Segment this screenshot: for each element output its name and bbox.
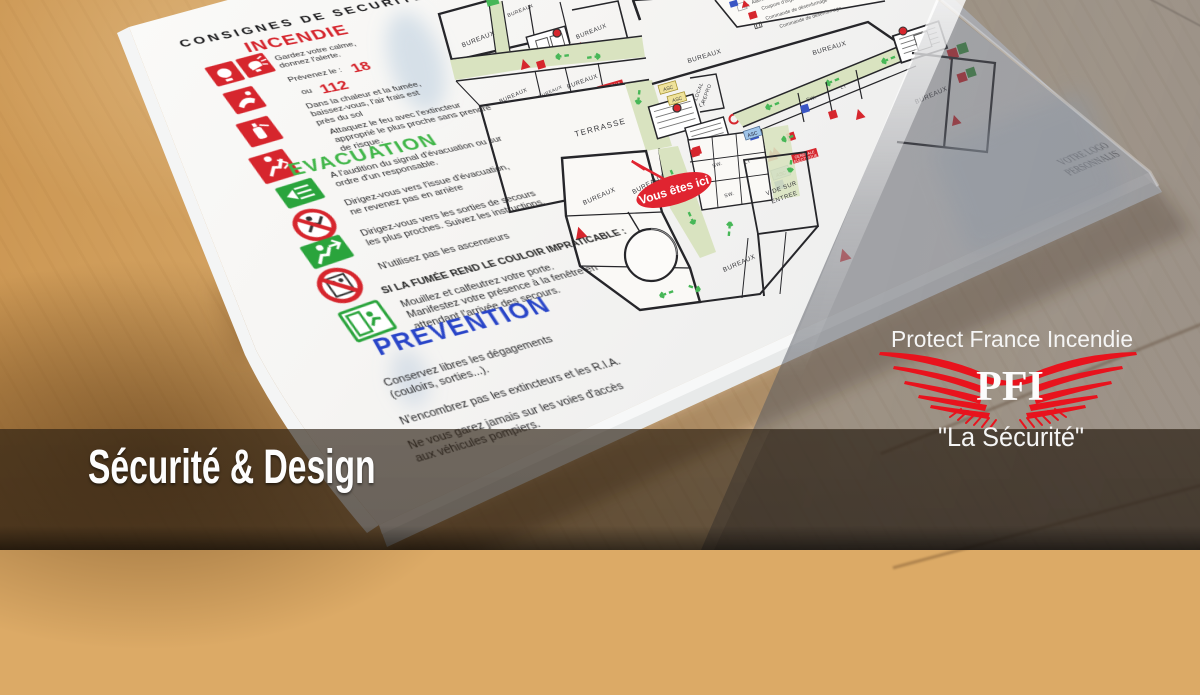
- svg-text:"La Sécurité": "La Sécurité": [938, 422, 1084, 452]
- svg-text:Protect France Incendie: Protect France Incendie: [891, 326, 1133, 352]
- svg-text:PFI: PFI: [976, 364, 1044, 410]
